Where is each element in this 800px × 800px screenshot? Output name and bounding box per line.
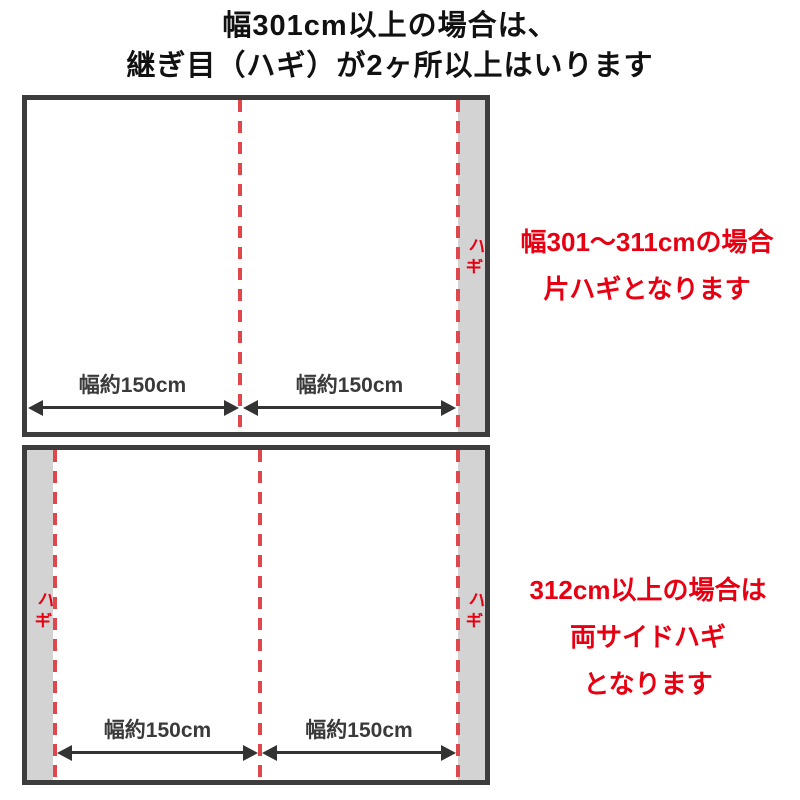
- arrow-shaft: [272, 751, 446, 754]
- width-arrow-label-left-top: 幅約150cm: [27, 369, 238, 399]
- width-arrow-left-bottom: [57, 745, 258, 761]
- arrow-head-right-icon: [441, 400, 456, 416]
- title-line-2: 継ぎ目（ハギ）が2ヶ所以上はいります: [0, 46, 780, 86]
- diagram-top-fabric-panel: ハギ 幅約150cm 幅約150cm: [22, 95, 490, 437]
- annotation-top: 幅301～311cmの場合 片ハギとなります: [498, 227, 796, 321]
- width-arrow-label-right-bottom: 幅約150cm: [262, 714, 456, 744]
- page: 幅301cm以上の場合は、 継ぎ目（ハギ）が2ヶ所以上はいります ハギ 幅約15…: [0, 0, 800, 800]
- arrow-shaft: [38, 406, 229, 409]
- arrow-head-right-icon: [224, 400, 239, 416]
- seam-dashed-line-center-top: [238, 100, 242, 432]
- width-arrow-label-left-bottom: 幅約150cm: [57, 714, 258, 744]
- annotation-top-line-2: 片ハギとなります: [498, 274, 796, 304]
- title-line-1: 幅301cm以上の場合は、: [0, 6, 780, 46]
- width-arrow-right-bottom: [262, 745, 456, 761]
- width-arrow-right-top: [243, 400, 456, 416]
- arrow-head-right-icon: [243, 745, 258, 761]
- annotation-bottom-line-2: 両サイドハギ: [498, 622, 798, 652]
- page-title: 幅301cm以上の場合は、 継ぎ目（ハギ）が2ヶ所以上はいります: [0, 6, 780, 86]
- width-arrow-label-right-top: 幅約150cm: [243, 369, 456, 399]
- arrow-shaft: [67, 751, 248, 754]
- annotation-bottom-line-3: となります: [498, 669, 798, 699]
- annotation-top-line-1: 幅301～311cmの場合: [498, 227, 796, 257]
- annotation-bottom-line-1: 312cm以上の場合は: [498, 575, 798, 605]
- width-arrow-left-top: [28, 400, 239, 416]
- annotation-bottom: 312cm以上の場合は 両サイドハギ となります: [498, 575, 798, 716]
- arrow-shaft: [253, 406, 446, 409]
- diagram-bottom-fabric-panel: ハギ ハギ 幅約150cm 幅約150cm: [22, 445, 490, 785]
- arrow-head-right-icon: [441, 745, 456, 761]
